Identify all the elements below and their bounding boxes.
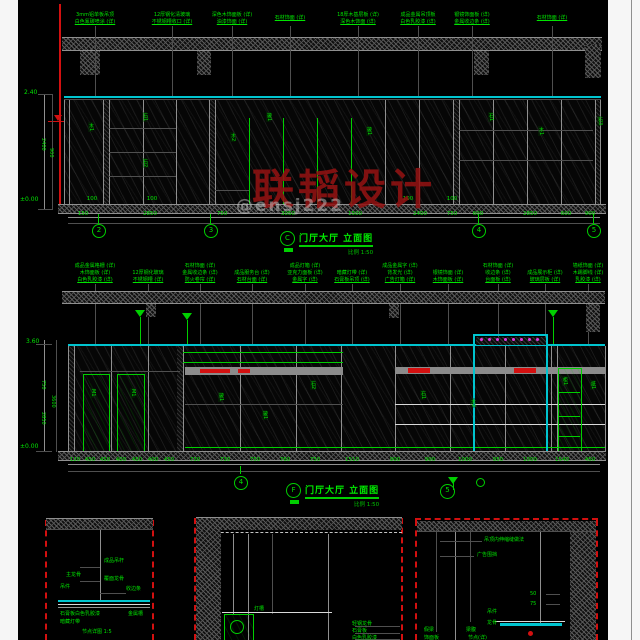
beam-drop bbox=[197, 51, 211, 75]
panel-tag: 木2 bbox=[470, 398, 475, 408]
detail-note: 白色乳胶漆 bbox=[352, 635, 377, 640]
drawing2-scale: 比例 1:50 bbox=[354, 500, 379, 508]
detail-note: 石膏板白色乳胶漆 bbox=[60, 611, 100, 617]
line bbox=[172, 26, 173, 96]
dimension-value: 750 bbox=[447, 211, 458, 217]
slab-hatch bbox=[196, 518, 402, 530]
beam-drop bbox=[146, 304, 156, 317]
material-callout: 白色乳胶漆 (详) bbox=[77, 277, 113, 283]
material-callout: 深色木饰面板 (详) bbox=[212, 12, 253, 18]
column-hatch bbox=[585, 45, 601, 78]
line bbox=[38, 94, 52, 95]
dimension-value: 1510 bbox=[345, 457, 359, 463]
detail-note: 节点(详) bbox=[468, 635, 487, 640]
material-callout: 不锈钢槽 (详) bbox=[133, 277, 164, 283]
line bbox=[148, 346, 149, 452]
elevation-symbol: C bbox=[280, 231, 295, 246]
ceiling-hatch bbox=[62, 292, 605, 303]
green-line bbox=[553, 317, 554, 344]
material-callout: 石材台面 (详) bbox=[237, 277, 268, 283]
line bbox=[440, 541, 482, 542]
line bbox=[109, 176, 176, 177]
dimension-value: 900 bbox=[425, 457, 436, 463]
line bbox=[328, 534, 329, 640]
material-callout: 暗藏灯带 (详) bbox=[337, 270, 368, 276]
detail-border bbox=[152, 520, 154, 640]
dimension-value: 730 bbox=[190, 457, 201, 463]
dimension-value: 950 bbox=[493, 457, 504, 463]
detail-note: 节点详图 1:5 bbox=[82, 629, 112, 635]
cyan-line bbox=[473, 334, 548, 336]
section-cut-line bbox=[59, 4, 61, 210]
ceiling-edge-line bbox=[64, 96, 601, 98]
door-elevation bbox=[117, 374, 145, 453]
white-dashed-line bbox=[196, 532, 402, 533]
line bbox=[495, 621, 565, 622]
green-line bbox=[183, 362, 343, 363]
material-callout: 墙纸饰面 (详) bbox=[573, 263, 604, 269]
material-callout: 台面板 (详) bbox=[485, 277, 511, 283]
line bbox=[80, 581, 100, 582]
line bbox=[290, 26, 291, 96]
dimension-value: 2850 bbox=[523, 211, 537, 217]
material-callout: 成品金属格栅 (详) bbox=[75, 263, 116, 269]
dimension-value: 2850 bbox=[143, 211, 157, 217]
downlight-dot bbox=[528, 338, 531, 341]
material-callout: 银镜饰面板 (详) bbox=[454, 12, 490, 18]
line bbox=[546, 604, 560, 605]
line bbox=[64, 100, 65, 205]
sill-line bbox=[185, 447, 605, 448]
grid-bubble bbox=[476, 478, 485, 487]
slab-hatch bbox=[417, 521, 596, 531]
line bbox=[455, 532, 456, 640]
line bbox=[44, 94, 45, 210]
line bbox=[552, 26, 553, 96]
panel-tag: 玻1 bbox=[218, 392, 223, 402]
line bbox=[215, 190, 249, 191]
grid-bubble: 4 bbox=[472, 224, 486, 238]
grid-bubble: 2 bbox=[92, 224, 106, 238]
detail-note: 主龙骨 bbox=[66, 572, 81, 578]
line bbox=[272, 534, 273, 614]
cyan-line bbox=[500, 623, 562, 626]
detail-border bbox=[45, 520, 47, 640]
drawing-layer: 3mm铝单板吊顶白色氟碳喷涂 (详)12厚钢化清玻璃不锈钢槽收口 (详)深色木饰… bbox=[0, 0, 640, 640]
material-callout: 石材饰面 (详) bbox=[537, 15, 568, 21]
dimension-line bbox=[68, 464, 600, 465]
material-callout: 白色氟碳喷涂 (详) bbox=[75, 19, 116, 25]
dimension-line bbox=[68, 223, 600, 224]
panel-tag: 石2 bbox=[310, 380, 315, 390]
panel-tag: 木2 bbox=[230, 132, 235, 142]
detail-border bbox=[415, 520, 417, 640]
detail-note: 收边条 bbox=[126, 586, 141, 592]
dimension-value: 450 bbox=[585, 457, 596, 463]
elevation-symbol: F bbox=[286, 483, 301, 498]
line bbox=[459, 160, 593, 161]
line bbox=[222, 612, 332, 613]
dimension-value: 2400 bbox=[40, 138, 45, 151]
dimension-value: 750 bbox=[310, 457, 321, 463]
line bbox=[38, 209, 52, 210]
dimension-value: 750 bbox=[40, 380, 45, 390]
line bbox=[62, 50, 602, 51]
sign-text bbox=[200, 369, 230, 373]
material-callout: 木饰面板 (详) bbox=[80, 270, 111, 276]
detail-note: 饰面板 bbox=[424, 635, 439, 640]
level-label: ±0.00 bbox=[20, 197, 38, 203]
ceiling-marker bbox=[135, 310, 145, 317]
line bbox=[100, 593, 126, 594]
material-callout: 亚克力面板 (详) bbox=[287, 270, 323, 276]
line bbox=[176, 100, 177, 205]
line bbox=[103, 100, 104, 205]
line bbox=[69, 100, 70, 205]
drawing1-title: 门厅大厅 立面图 bbox=[299, 231, 373, 247]
grid-bubble: 4 bbox=[234, 476, 248, 490]
detail-border bbox=[415, 518, 598, 520]
panel-tag: 石1 bbox=[488, 112, 493, 122]
material-callout: 成品金属字 (详) bbox=[382, 263, 418, 269]
sign-text bbox=[408, 368, 430, 373]
red-marker bbox=[528, 631, 533, 636]
panel-tag: 石2 bbox=[142, 158, 147, 168]
line bbox=[561, 100, 562, 205]
detail-marker: 5 bbox=[440, 484, 455, 499]
line bbox=[109, 152, 176, 153]
dimension-value: 900 bbox=[585, 211, 596, 217]
dimension-value: 400 bbox=[148, 457, 159, 463]
green-line bbox=[210, 214, 211, 224]
material-callout: 收边条 (详) bbox=[485, 270, 511, 276]
detail-note: 50 bbox=[530, 591, 536, 597]
material-callout: 白色乳胶漆 (详) bbox=[400, 19, 436, 25]
detail-note: 金属槽 bbox=[128, 611, 143, 617]
column-hatch bbox=[586, 304, 600, 332]
material-callout: 石膏板吊顶 (详) bbox=[334, 277, 370, 283]
detail-note: 梁腹 bbox=[466, 627, 476, 633]
material-callout: 银镜饰面 (详) bbox=[433, 270, 464, 276]
line bbox=[436, 532, 437, 632]
page-edge-line bbox=[631, 0, 632, 640]
dimension-value: 900 bbox=[390, 457, 401, 463]
material-callout: 玻璃层板 (详) bbox=[530, 277, 561, 283]
cyan-line bbox=[473, 334, 475, 452]
panel-tag: 纸1 bbox=[590, 380, 595, 390]
material-callout: 金属字 (详) bbox=[292, 277, 318, 283]
material-callout: 乳胶漆 (详) bbox=[575, 277, 601, 283]
material-callout: 广告灯箱 (详) bbox=[385, 277, 416, 283]
level-label: 3.60 bbox=[26, 339, 39, 345]
material-callout: 木踢脚线 (详) bbox=[573, 270, 604, 276]
material-callout: 防火卷帘 (详) bbox=[185, 277, 216, 283]
dimension-value: 450 bbox=[100, 457, 111, 463]
downlight-dot bbox=[496, 338, 499, 341]
detail-note: 吊顶内伸缩缝做法 bbox=[484, 537, 524, 543]
panel-tag: 木1 bbox=[538, 126, 543, 136]
line bbox=[595, 100, 596, 205]
detail-note: 轻钢龙骨 bbox=[352, 621, 372, 627]
dimension-value: 1000 bbox=[523, 457, 537, 463]
dimension-value: 400 bbox=[116, 457, 127, 463]
dimension-value: 450 bbox=[164, 457, 175, 463]
line bbox=[233, 534, 234, 614]
ceiling-marker bbox=[548, 310, 558, 317]
drawing2-title-block: F 门厅大厅 立面图 比例 1:50 bbox=[286, 483, 379, 508]
glass-mullion bbox=[249, 118, 250, 205]
line bbox=[62, 303, 605, 304]
dimension-value: 600 bbox=[473, 211, 484, 217]
line bbox=[80, 371, 180, 372]
downlight-dot bbox=[480, 338, 483, 341]
green-line bbox=[558, 436, 580, 437]
beam-drop bbox=[389, 304, 399, 318]
panel-tag: 玻1 bbox=[262, 410, 267, 420]
material-callout: 12厚钢化清玻璃 bbox=[154, 12, 190, 18]
panel-tag: 石1 bbox=[420, 390, 425, 400]
line bbox=[527, 100, 528, 205]
panel-tag: M1 bbox=[130, 388, 135, 398]
panel-tag: 玻1 bbox=[266, 112, 271, 122]
line bbox=[56, 340, 57, 452]
material-callout: 成品灯箱 (详) bbox=[290, 263, 321, 269]
detail-note: 龙骨 bbox=[487, 620, 497, 626]
dimension-value: 100 bbox=[147, 196, 158, 202]
wall-section-hatch bbox=[570, 532, 596, 640]
line bbox=[36, 451, 52, 452]
wall-section-hatch bbox=[196, 530, 221, 640]
dimension-value: 750 bbox=[250, 457, 261, 463]
material-callout: 木饰面板 (详) bbox=[433, 277, 464, 283]
material-callout: 成品展示柜 (详) bbox=[527, 270, 563, 276]
line bbox=[74, 346, 75, 452]
material-callout: 成品金属吊顶板 bbox=[400, 12, 435, 18]
door-elevation bbox=[83, 374, 110, 453]
line bbox=[80, 567, 100, 568]
beam-drop bbox=[474, 51, 489, 75]
line bbox=[459, 130, 593, 131]
slab-hatch bbox=[46, 519, 153, 529]
downlight-dot bbox=[536, 338, 539, 341]
detail-note: 石膏板 bbox=[352, 628, 367, 634]
cad-sheet: 3mm铝单板吊顶白色氟碳喷涂 (详)12厚钢化清玻璃不锈钢槽收口 (详)深色木饰… bbox=[0, 0, 640, 640]
sign-text bbox=[238, 369, 250, 373]
green-line bbox=[558, 392, 580, 393]
dimension-line bbox=[68, 471, 600, 472]
panel-tag: 木1 bbox=[88, 122, 93, 132]
line bbox=[546, 594, 560, 595]
dimension-value: 100 bbox=[87, 196, 98, 202]
dimension-value: 1000 bbox=[458, 457, 472, 463]
material-callout: 不锈钢槽收口 (详) bbox=[152, 19, 193, 25]
line bbox=[450, 346, 451, 452]
drawing1-scale: 比例 1:50 bbox=[348, 248, 373, 256]
dimension-value: 100 bbox=[447, 196, 458, 202]
dimension-value: 3600 bbox=[50, 395, 55, 408]
detail-note: 75 bbox=[530, 601, 536, 607]
level-label: ±0.00 bbox=[20, 444, 38, 450]
cyan-line bbox=[58, 600, 150, 602]
sign-text bbox=[514, 368, 536, 373]
detail-note: 成品吊杆 bbox=[104, 558, 124, 564]
panel-tag: M1 bbox=[90, 388, 95, 398]
dimension-line bbox=[68, 217, 600, 218]
material-callout: 18厚木基层板 (详) bbox=[337, 12, 379, 18]
detail-note: 暗藏灯带 bbox=[60, 619, 80, 625]
material-callout: 深色木饰面 (详) bbox=[340, 19, 376, 25]
line bbox=[100, 530, 101, 602]
line bbox=[418, 26, 419, 96]
ceiling-hatch bbox=[62, 38, 602, 50]
panel-tag: 柜1 bbox=[562, 376, 567, 386]
line bbox=[109, 128, 176, 129]
line bbox=[395, 346, 396, 452]
material-callout: 石材饰面 (详) bbox=[483, 263, 514, 269]
watermark-subtext: @ensj222 bbox=[236, 196, 344, 216]
detail-note: 吊件 bbox=[487, 609, 497, 615]
green-line bbox=[558, 416, 580, 417]
dimension-value: 600 bbox=[561, 211, 572, 217]
green-line bbox=[187, 320, 188, 344]
level-marker bbox=[54, 115, 62, 121]
dimension-value: 150 bbox=[78, 211, 89, 217]
material-callout: 3mm铝单板吊顶 bbox=[76, 12, 114, 18]
material-callout: 石材饰面 (详) bbox=[185, 263, 216, 269]
dimension-value: 900 bbox=[48, 148, 53, 158]
green-line bbox=[183, 352, 343, 353]
material-callout: 背发光 (详) bbox=[387, 270, 413, 276]
line bbox=[232, 26, 233, 96]
downlight-dot bbox=[504, 338, 507, 341]
dimension-value: 1540 bbox=[555, 457, 569, 463]
detail-note: 覆面龙骨 bbox=[104, 576, 124, 582]
line bbox=[111, 346, 112, 452]
dimension-value: 730 bbox=[220, 457, 231, 463]
detail-note: 假梁 bbox=[424, 627, 434, 633]
detail-border bbox=[401, 518, 403, 640]
line bbox=[58, 604, 150, 605]
line bbox=[551, 346, 552, 452]
line bbox=[358, 26, 359, 96]
light-fixture bbox=[230, 620, 244, 634]
line bbox=[472, 26, 473, 96]
dimension-value: 450 bbox=[85, 457, 96, 463]
green-line bbox=[140, 317, 141, 344]
detail-note: 吊件 bbox=[60, 584, 70, 590]
cyan-line bbox=[546, 334, 548, 452]
beam-drop bbox=[80, 51, 100, 75]
downlight-dot bbox=[512, 338, 515, 341]
line bbox=[459, 100, 460, 205]
material-callout: 石材饰面 (详) bbox=[275, 15, 306, 21]
green-line bbox=[240, 466, 241, 474]
material-callout: 成品服务台 (详) bbox=[234, 270, 270, 276]
ceiling-marker bbox=[182, 313, 192, 320]
drawing2-title: 门厅大厅 立面图 bbox=[305, 483, 379, 499]
dimension-value: 760 bbox=[280, 457, 291, 463]
line bbox=[470, 532, 471, 622]
drawing1-title-block: C 门厅大厅 立面图 比例 1:50 bbox=[280, 231, 373, 256]
dimension-value: 2850 bbox=[40, 412, 45, 425]
grid-bubble: 5 bbox=[587, 224, 601, 238]
downlight-dot bbox=[488, 338, 491, 341]
line bbox=[185, 404, 343, 405]
panel-tag: 石1 bbox=[142, 112, 147, 122]
panel-tag: 石3 bbox=[597, 116, 602, 126]
detail-note: 灯槽 bbox=[254, 606, 264, 612]
downlight-dot bbox=[520, 338, 523, 341]
line bbox=[453, 100, 454, 205]
material-callout: 金属收边条 (详) bbox=[182, 270, 218, 276]
panel-tag: 玻1 bbox=[366, 126, 371, 136]
line bbox=[44, 340, 45, 452]
detail-border bbox=[596, 520, 598, 640]
level-label: 2.40 bbox=[24, 90, 37, 96]
grid-bubble: 3 bbox=[204, 224, 218, 238]
line bbox=[440, 556, 474, 557]
dimension-value: 120 bbox=[70, 457, 81, 463]
line bbox=[209, 100, 210, 205]
material-callout: 油漆饰面 (详) bbox=[217, 19, 248, 25]
line bbox=[58, 607, 150, 608]
detail-note: 广告围挡 bbox=[477, 552, 497, 558]
line bbox=[540, 532, 541, 624]
line bbox=[95, 26, 96, 96]
line bbox=[605, 346, 606, 452]
line bbox=[68, 346, 69, 452]
dimension-value: 450 bbox=[132, 457, 143, 463]
material-callout: 12厚钢化玻璃 bbox=[132, 270, 163, 276]
material-callout: 金属收边条 (详) bbox=[454, 19, 490, 25]
green-line bbox=[98, 214, 99, 224]
line bbox=[505, 346, 506, 452]
dimension-value: 750 bbox=[217, 211, 228, 217]
